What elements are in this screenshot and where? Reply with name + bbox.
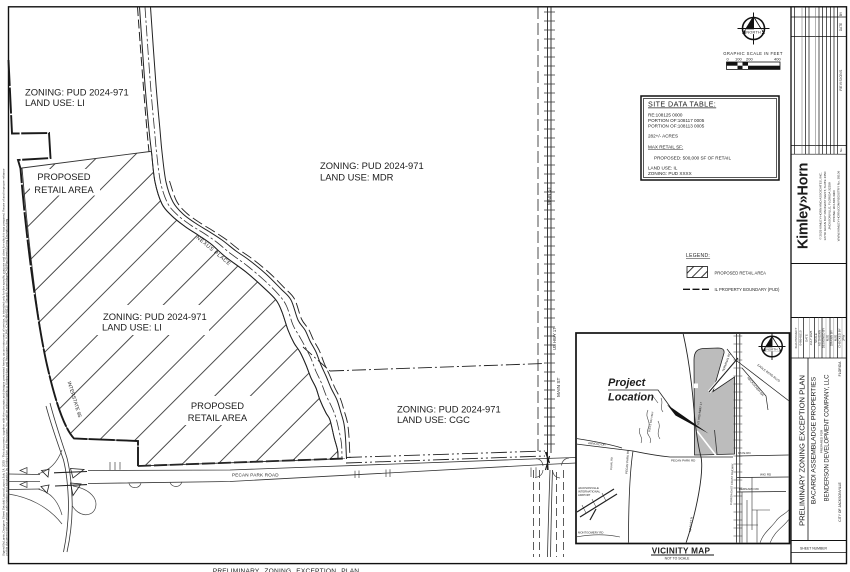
svg-text:ZONING: PUD XXXX: ZONING: PUD XXXX [648,171,692,176]
svg-text:LAND USE: CGC: LAND USE: CGC [397,414,470,425]
svg-text:NORTH: NORTH [746,30,761,34]
svg-text:PROPOSED: PROPOSED [37,171,90,182]
svg-text:GRAPHIC SCALE IN FEET: GRAPHIC SCALE IN FEET [723,51,783,56]
svg-text:VICINITY MAP: VICINITY MAP [652,547,711,556]
svg-text:LAND USE: IL: LAND USE: IL [648,166,678,171]
svg-text:RETAIL AREA: RETAIL AREA [34,184,94,195]
svg-text:400: 400 [774,57,781,62]
svg-text:282+/- ACRES: 282+/- ACRES [648,134,678,139]
svg-text:048649210: 048649210 [799,330,803,345]
svg-text:US HWY 17: US HWY 17 [552,327,557,350]
svg-text:NORTH: NORTH [767,348,778,352]
svg-text:PECAN PARK ROAD: PECAN PARK ROAD [232,473,279,478]
svg-text:PORTION OF:108113 0005: PORTION OF:108113 0005 [648,124,705,129]
svg-text:LAND USE: LI: LAND USE: LI [102,321,162,332]
svg-text:MAX RETAIL SF:: MAX RETAIL SF: [648,145,683,150]
svg-text:PECAN PARK RD: PECAN PARK RD [671,459,696,463]
svg-text:SITE DATA TABLE:: SITE DATA TABLE: [648,100,716,109]
svg-text:MONTGOMERY RD: MONTGOMERY RD [578,531,603,535]
svg-text:ZONING: PUD 2024-971: ZONING: PUD 2024-971 [397,403,501,414]
svg-text:Kimley»Horn: Kimley»Horn [796,163,812,249]
svg-text:RE:108125 0000: RE:108125 0000 [648,113,683,118]
svg-text:FAYE RD: FAYE RD [738,451,751,455]
svg-text:ZONING: PUD 2024-971: ZONING: PUD 2024-971 [320,160,424,171]
svg-text:LAND USE: MDR: LAND USE: MDR [320,172,394,183]
svg-text:PRELIMINARY ZONING EXCEPTION P: PRELIMINARY ZONING EXCEPTION PLAN [213,568,360,572]
svg-text:DUVAL RD: DUVAL RD [609,457,614,470]
svg-text:FLORIDA: FLORIDA [838,361,842,376]
svg-text:SHEET NUMBER: SHEET NUMBER [800,547,827,551]
svg-text:MAIN ST: MAIN ST [547,186,552,205]
svg-text:WIG RD: WIG RD [760,473,772,477]
svg-text:JPW: JPW [841,335,845,342]
svg-text:on this document without writt: on this document without written authori… [4,219,8,556]
svg-text:12740 GRAN BAY PARKWAY WEST, S: 12740 GRAN BAY PARKWAY WEST, SUITE 2350 [823,171,827,240]
svg-text:LEGEND:: LEGEND: [686,253,710,259]
svg-text:BENDERSON DEVELOPMENT COMPANY,: BENDERSON DEVELOPMENT COMPANY, LLC [825,374,831,501]
svg-text:Project: Project [608,377,647,389]
svg-text:DATE: DATE [839,23,843,31]
svg-text:RETAIL AREA: RETAIL AREA [188,412,248,423]
svg-text:LAND USE: LI: LAND USE: LI [25,97,85,108]
svg-text:PREPARED FOR: PREPARED FOR [820,429,824,453]
svg-text:PROPOSED RETAIL AREA: PROPOSED RETAIL AREA [715,271,767,276]
svg-text:No.: No. [839,147,843,152]
svg-text:DATE: DATE [805,334,809,342]
svg-text:NOT TO SCALE: NOT TO SCALE [665,557,690,561]
svg-text:PROPOSED: PROPOSED [191,400,244,411]
svg-text:MAIN ST: MAIN ST [556,377,562,397]
svg-text:PRELIMINARY ZONING EXCEPTION P: PRELIMINARY ZONING EXCEPTION PLAN [798,375,807,526]
svg-text:PHONE: 904-828-3900: PHONE: 904-828-3900 [832,190,836,222]
svg-text:Location: Location [608,392,654,404]
svg-text:PORTION OF:108117 0005: PORTION OF:108117 0005 [648,118,705,123]
svg-text:IL PROPERTY BOUNDARY (PUD): IL PROPERTY BOUNDARY (PUD) [715,287,781,292]
svg-text:PROPOSED: 500,000 SF OF RETAIL: PROPOSED: 500,000 SF OF RETAIL [654,156,731,161]
svg-text:CITY OF JACKSONVILLE: CITY OF JACKSONVILLE [838,482,842,522]
svg-text:100: 100 [735,57,742,62]
svg-text:AIRPORT: AIRPORT [578,493,591,497]
svg-text:REVISIONS: REVISIONS [839,69,843,91]
svg-text:KHA PROJECT: KHA PROJECT [794,327,798,348]
svg-text:JACKSONVILLE, FLORIDA 32258: JACKSONVILLE, FLORIDA 32258 [828,182,832,230]
svg-text:JULY 2025: JULY 2025 [809,330,813,345]
svg-text:BACARDI ASSEMBLADGE PROPERTIES: BACARDI ASSEMBLADGE PROPERTIES [811,376,818,504]
svg-text:ZONING: PUD 2024-971: ZONING: PUD 2024-971 [103,311,207,322]
svg-text:ZONING: PUD 2024-971: ZONING: PUD 2024-971 [25,87,129,98]
svg-text:200: 200 [746,57,753,62]
svg-text:WWW.KIMLEY-HORN.COM REGISTRY: WWW.KIMLEY-HORN.COM REGISTRY No. 35106 [837,171,841,242]
svg-text:BERNARD RD: BERNARD RD [739,487,760,491]
svg-text:© 2025 KIMLEY-HORN AND ASSOCIA: © 2025 KIMLEY-HORN AND ASSOCIATES, INC. [819,172,823,240]
